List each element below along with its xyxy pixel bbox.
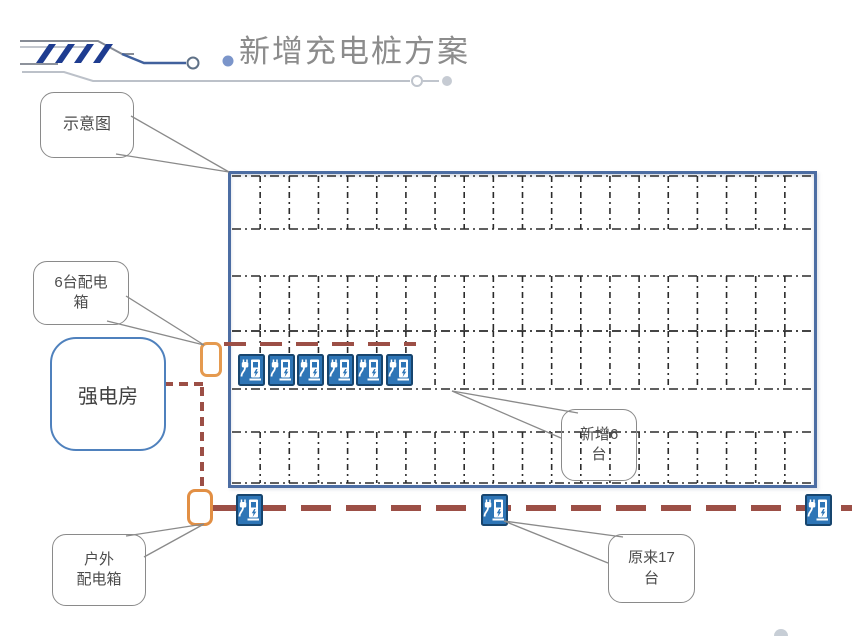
callout-text-line: 原来17: [628, 548, 675, 568]
power-cable-room-to-riser: [164, 382, 204, 386]
power-cable-to-new-piles: [224, 342, 416, 346]
new-charging-pile-icon: [356, 354, 383, 386]
callout-text-line: 新增6: [580, 425, 618, 445]
existing-charging-pile-icon: [805, 494, 832, 526]
new-charging-pile-icon: [238, 354, 265, 386]
six-distribution-boxes-callout: 6台配电 箱: [33, 261, 129, 325]
schematic-callout: 示意图: [40, 92, 134, 158]
new-6-piles-callout: 新增6 台: [561, 409, 637, 481]
outdoor-distribution-box-callout: 户外 配电箱: [52, 534, 146, 606]
new-charging-pile-icon: [268, 354, 295, 386]
callout-text-line: 箱: [73, 293, 88, 313]
distribution-box-icon: [200, 342, 222, 377]
slide: 新增充电桩方案 强电房 示意图 6台配电 箱 新增6 台 原来17 台 户外 配…: [0, 0, 852, 636]
callout-text-line: 配电箱: [76, 570, 121, 590]
page-title: 新增充电桩方案: [239, 26, 470, 71]
callout-text-line: 户外: [84, 550, 114, 570]
outdoor-distribution-box-icon: [187, 489, 213, 526]
power-cable-riser: [200, 387, 204, 489]
callout-text-line: 台: [591, 445, 606, 465]
parking-lot: [228, 171, 817, 488]
new-charging-pile-icon: [327, 354, 354, 386]
power-cable-bottom-run: [211, 505, 852, 511]
parking-space-lines: [231, 174, 814, 485]
existing-charging-pile-icon: [481, 494, 508, 526]
new-charging-pile-icon: [297, 354, 324, 386]
callout-text: 示意图: [63, 114, 111, 136]
arrow-stripes-icon: [36, 44, 113, 63]
callout-text-line: 台: [644, 569, 659, 589]
original-17-piles-callout: 原来17 台: [608, 534, 695, 603]
new-charging-pile-icon: [386, 354, 413, 386]
power-room-box: 强电房: [50, 337, 166, 451]
corner-decoration-dot: [774, 629, 788, 636]
original-17-piles-callout-tail: [504, 521, 623, 563]
callout-text-line: 6台配电: [54, 273, 107, 293]
power-room-label: 强电房: [78, 380, 138, 409]
existing-charging-pile-icon: [236, 494, 263, 526]
